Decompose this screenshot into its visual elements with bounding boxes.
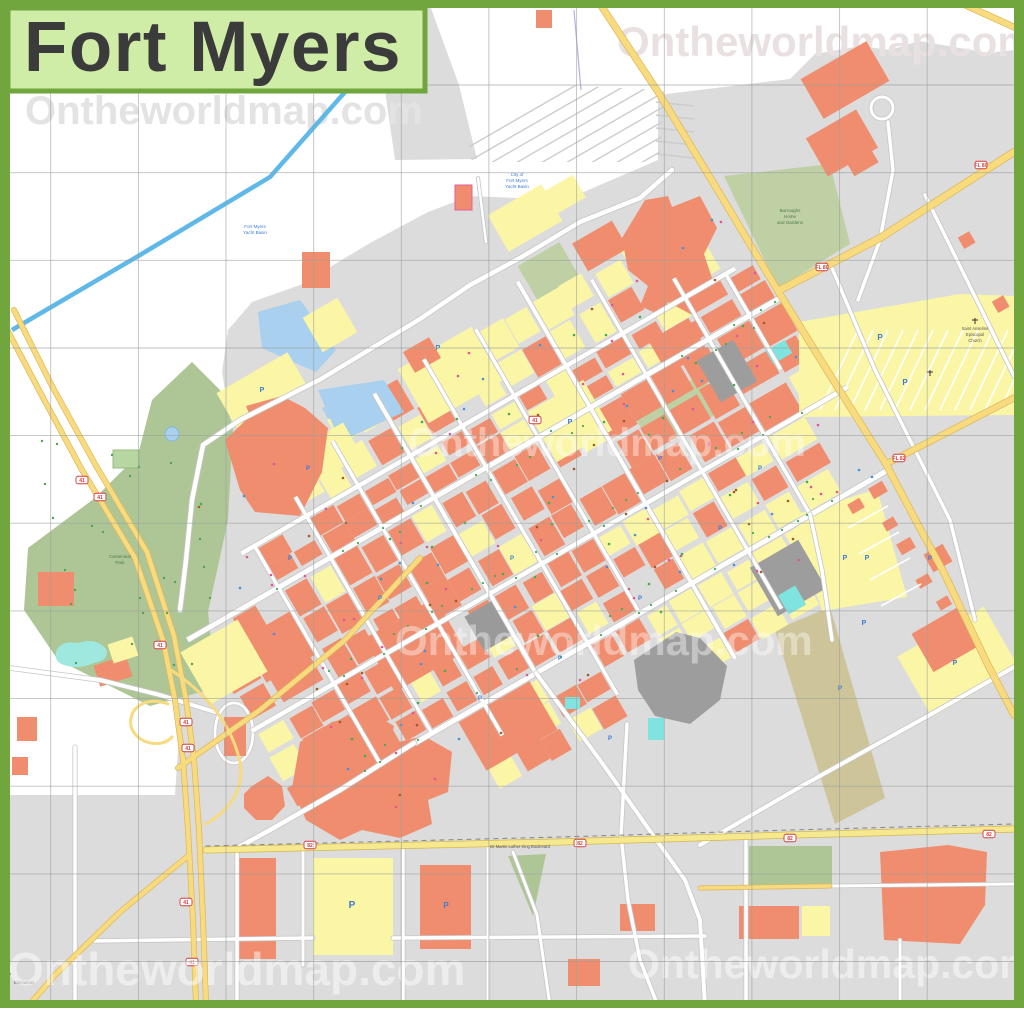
svg-text:P: P <box>865 555 870 562</box>
svg-text:P: P <box>638 596 642 602</box>
svg-text:Ontheworldmap.com: Ontheworldmap.com <box>8 943 465 995</box>
svg-text:Ontheworldmap.com: Ontheworldmap.com <box>408 421 806 465</box>
svg-text:Home: Home <box>784 214 797 219</box>
svg-text:P: P <box>758 466 762 472</box>
svg-text:Burroughs: Burroughs <box>780 208 802 213</box>
svg-text:P: P <box>443 901 449 910</box>
svg-text:P: P <box>378 596 382 602</box>
svg-text:Ontheworldmap.com: Ontheworldmap.com <box>25 89 423 133</box>
svg-text:P: P <box>953 660 958 667</box>
svg-text:P: P <box>862 620 867 627</box>
svg-text:P: P <box>436 345 441 352</box>
svg-text:P: P <box>902 378 908 387</box>
svg-text:Ontheworldmap.com: Ontheworldmap.com <box>628 941 1024 987</box>
svg-text:P: P <box>843 555 848 562</box>
svg-text:P: P <box>510 556 514 562</box>
svg-text:FL 80: FL 80 <box>816 265 829 271</box>
svg-text:82: 82 <box>577 841 583 847</box>
svg-text:P: P <box>718 526 722 532</box>
svg-text:41: 41 <box>183 900 189 906</box>
svg-text:and Gardens: and Gardens <box>777 220 804 225</box>
svg-text:Episcopal: Episcopal <box>966 332 984 337</box>
svg-text:Dr Martin Luther King Boulevar: Dr Martin Luther King Boulevard <box>490 844 550 849</box>
svg-text:Centennial: Centennial <box>109 554 131 559</box>
svg-text:P: P <box>288 556 292 562</box>
svg-text:Park: Park <box>115 560 125 565</box>
svg-text:Church: Church <box>968 338 982 343</box>
svg-text:41: 41 <box>185 746 191 752</box>
svg-text:P: P <box>608 736 612 742</box>
svg-text:Ontheworldmap.com: Ontheworldmap.com <box>617 18 1024 65</box>
svg-text:Saint Anselms: Saint Anselms <box>962 326 989 331</box>
svg-text:41: 41 <box>79 478 85 484</box>
svg-text:Fort Myers: Fort Myers <box>244 224 266 229</box>
svg-text:P: P <box>260 387 265 394</box>
svg-text:Fort Myers: Fort Myers <box>24 8 402 87</box>
svg-text:82: 82 <box>307 843 313 849</box>
svg-text:82: 82 <box>787 836 793 842</box>
svg-text:FL 80: FL 80 <box>975 163 988 169</box>
svg-text:Yacht Basin: Yacht Basin <box>505 184 529 189</box>
svg-text:FL 82: FL 82 <box>893 456 906 462</box>
svg-text:P: P <box>928 556 932 562</box>
svg-text:Yacht Basin: Yacht Basin <box>243 230 267 235</box>
svg-text:41: 41 <box>97 495 103 501</box>
svg-text:P: P <box>349 900 356 911</box>
svg-text:Fort Myers: Fort Myers <box>506 178 528 183</box>
svg-text:P: P <box>306 466 310 472</box>
svg-text:P: P <box>877 333 883 342</box>
svg-text:Ontheworldmap.com: Ontheworldmap.com <box>395 617 813 664</box>
svg-text:41: 41 <box>157 643 163 649</box>
svg-text:82: 82 <box>986 832 992 838</box>
svg-text:41: 41 <box>183 720 189 726</box>
